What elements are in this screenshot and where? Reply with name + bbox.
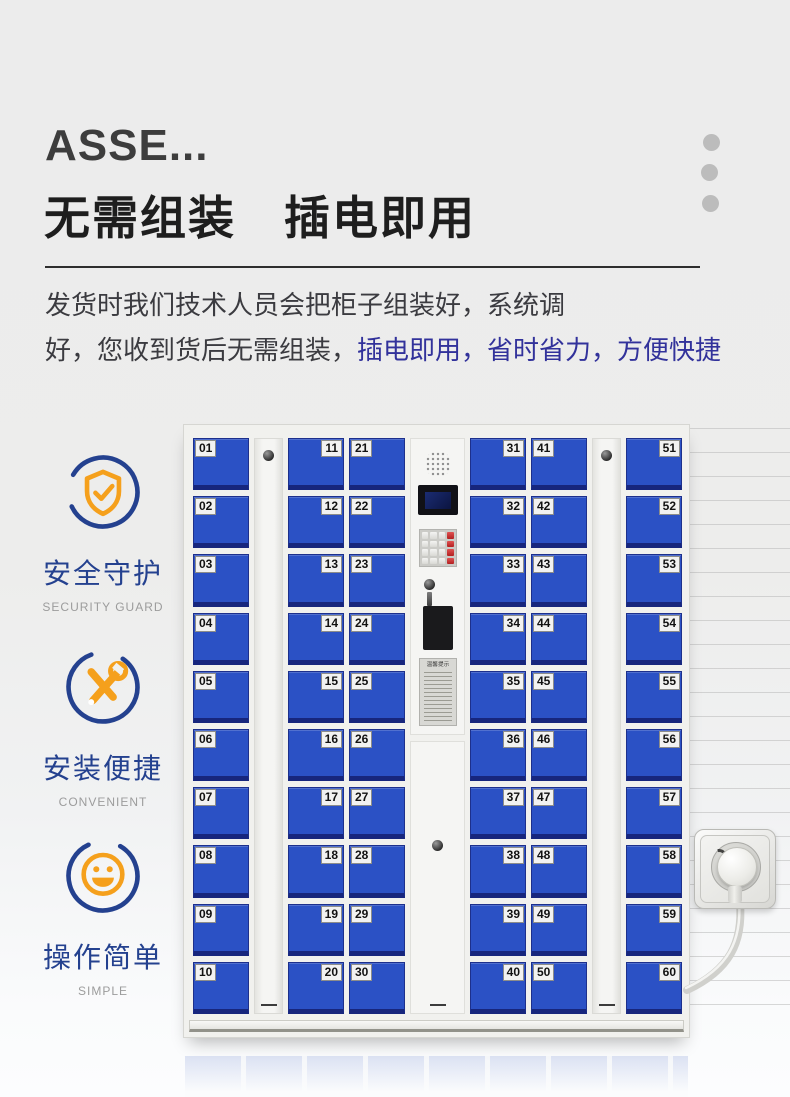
locker-door: 42 [531,496,587,548]
locker-door: 29 [349,904,405,956]
locker-door-number: 26 [351,731,372,748]
locker-door-number: 21 [351,440,372,457]
locker-door-number: 12 [321,498,342,515]
cabinet-columns: 01020304050607080910 1112131415161718192… [193,438,680,1014]
lock-icon [424,579,435,590]
locker-door: 39 [470,904,526,956]
locker-door-number: 46 [533,731,554,748]
locker-door-number: 35 [503,673,524,690]
paragraph-line2-accent: 插电即用，省时省力，方便快捷 [357,335,721,365]
locker-door-number: 01 [195,440,216,457]
locker-door-number: 09 [195,906,216,923]
locker-door: 56 [626,729,682,781]
locker-door-number: 52 [659,498,680,515]
plug-neck [728,886,742,903]
keypad-key [430,541,437,548]
keypad-key [422,549,429,556]
lock-icon [263,450,274,461]
locker-door-number: 04 [195,615,216,632]
panel-keypad [419,529,457,567]
locker-door: 44 [531,613,587,665]
keypad-key [439,558,446,565]
locker-door: 18 [288,845,344,897]
feature-sublabel: SIMPLE [22,984,184,998]
locker-door: 17 [288,787,344,839]
feature-label: 安装便捷 [22,747,184,787]
locker-door-number: 27 [351,789,372,806]
locker-door-number: 06 [195,731,216,748]
page-title: ASSE... [45,121,209,171]
locker-door-number: 19 [321,906,342,923]
feature-sublabel: SECURITY GUARD [22,600,184,614]
locker-door: 57 [626,787,682,839]
locker-column-01-10: 01020304050607080910 [193,438,249,1014]
key-icon [427,592,432,606]
locker-door-number: 13 [321,556,342,573]
locker-door: 15 [288,671,344,723]
locker-door-number: 32 [503,498,524,515]
locker-door-number: 42 [533,498,554,515]
feature-sublabel: CONVENIENT [22,795,184,809]
locker-door: 14 [288,613,344,665]
locker-door: 48 [531,845,587,897]
sticker-text-lines [424,672,452,722]
locker-door-number: 41 [533,440,554,457]
keypad-key [439,549,446,556]
locker-door-number: 23 [351,556,372,573]
divider-line [45,266,700,268]
locker-door: 55 [626,671,682,723]
product-banner: ASSE... 无需组装 插电即用 发货时我们技术人员会把柜子组装好，系统调 好… [0,0,790,1097]
locker-door: 38 [470,845,526,897]
locker-door-number: 22 [351,498,372,515]
locker-door-number: 51 [659,440,680,457]
locker-door-number: 38 [503,847,524,864]
locker-door: 20 [288,962,344,1014]
locker-door: 40 [470,962,526,1014]
decoration-dot-icon [703,134,720,151]
locker-door: 43 [531,554,587,606]
keypad-key [430,532,437,539]
locker-column-11-20: 11121314151617181920 [288,438,344,1014]
feature-label: 操作简单 [22,936,184,976]
keypad-key [430,549,437,556]
vent-slot [430,1004,446,1006]
keypad-key [439,532,446,539]
locker-door-number: 20 [321,964,342,981]
locker-door: 50 [531,962,587,1014]
locker-door-number: 31 [503,440,524,457]
locker-door: 16 [288,729,344,781]
locker-door-number: 05 [195,673,216,690]
locker-door: 27 [349,787,405,839]
keypad-red-key [447,532,454,539]
locker-door-number: 43 [533,556,554,573]
locker-door-number: 39 [503,906,524,923]
locker-door: 35 [470,671,526,723]
locker-door: 03 [193,554,249,606]
description-paragraph: 发货时我们技术人员会把柜子组装好，系统调 好，您收到货后无需组装，插电即用，省时… [45,283,765,373]
locker-door-number: 18 [321,847,342,864]
keypad-key [422,532,429,539]
keypad-red-key [447,541,454,548]
control-panel-column: 温馨提示 [410,438,465,1014]
locker-door: 11 [288,438,344,490]
locker-door-number: 53 [659,556,680,573]
page-heading: 无需组装 插电即用 [44,182,476,248]
locker-door-number: 36 [503,731,524,748]
locker-door-number: 15 [321,673,342,690]
locker-door-number: 10 [195,964,216,981]
locker-door: 36 [470,729,526,781]
locker-door: 22 [349,496,405,548]
locker-door-number: 55 [659,673,680,690]
locker-door: 26 [349,729,405,781]
locker-door-number: 50 [533,964,554,981]
locker-door: 04 [193,613,249,665]
locker-door: 51 [626,438,682,490]
locker-door-number: 25 [351,673,372,690]
locker-door: 47 [531,787,587,839]
locker-door: 53 [626,554,682,606]
locker-door: 09 [193,904,249,956]
feature-convenient: 安装便捷 CONVENIENT [22,645,184,809]
locker-door-number: 40 [503,964,524,981]
center-service-door [410,741,465,1014]
locker-door-number: 07 [195,789,216,806]
locker-door: 46 [531,729,587,781]
hinge-panel [592,438,621,1014]
locker-door-number: 17 [321,789,342,806]
feature-simple: 操作简单 SIMPLE [22,834,184,998]
control-screen [418,485,458,515]
locker-door: 21 [349,438,405,490]
locker-door-number: 03 [195,556,216,573]
locker-door-number: 14 [321,615,342,632]
locker-door-number: 56 [659,731,680,748]
locker-door: 12 [288,496,344,548]
power-socket [694,829,776,909]
locker-door: 13 [288,554,344,606]
locker-door-number: 49 [533,906,554,923]
locker-door-number: 54 [659,615,680,632]
hinge-panel [254,438,283,1014]
locker-door-number: 11 [321,440,342,457]
locker-door-number: 47 [533,789,554,806]
locker-door-number: 24 [351,615,372,632]
control-panel: 温馨提示 [410,438,465,735]
locker-door: 10 [193,962,249,1014]
vent-slot [261,1004,277,1006]
speaker-grille-icon [425,451,451,477]
lock-icon [432,840,443,851]
locker-door: 28 [349,845,405,897]
locker-door: 37 [470,787,526,839]
locker-door-number: 30 [351,964,372,981]
decoration-dot-icon [702,195,719,212]
locker-door: 31 [470,438,526,490]
feature-label: 安全守护 [22,552,184,592]
locker-door: 24 [349,613,405,665]
locker-door: 30 [349,962,405,1014]
keypad-key [439,541,446,548]
locker-door: 49 [531,904,587,956]
smiley-icon [22,834,184,918]
vent-slot [599,1004,615,1006]
locker-door-number: 02 [195,498,216,515]
locker-door-number: 29 [351,906,372,923]
instruction-sticker: 温馨提示 [419,658,457,726]
power-plug [717,847,757,887]
locker-door-number: 34 [503,615,524,632]
keypad-key [422,541,429,548]
locker-door-number: 16 [321,731,342,748]
locker-door: 32 [470,496,526,548]
locker-door: 05 [193,671,249,723]
decoration-dot-icon [701,164,718,181]
tools-icon [22,645,184,729]
feature-security: 安全守护 SECURITY GUARD [22,450,184,614]
locker-door: 02 [193,496,249,548]
locker-column-41-50: 41424344454647484950 [531,438,587,1014]
paragraph-line1: 发货时我们技术人员会把柜子组装好，系统调 [45,290,565,320]
lock-icon [601,450,612,461]
locker-door-number: 28 [351,847,372,864]
locker-door: 45 [531,671,587,723]
locker-door-number: 33 [503,556,524,573]
cabinet-base [189,1020,684,1032]
locker-door: 07 [193,787,249,839]
locker-door: 41 [531,438,587,490]
locker-door: 19 [288,904,344,956]
locker-door-number: 08 [195,847,216,864]
locker-door-number: 45 [533,673,554,690]
keypad-key [422,558,429,565]
sticker-title: 温馨提示 [424,662,451,669]
keypad-red-key [447,558,454,565]
locker-door: 08 [193,845,249,897]
locker-door-number: 44 [533,615,554,632]
keypad-red-key [447,549,454,556]
paragraph-line2-black: 好，您收到货后无需组装， [45,335,357,365]
locker-door-number: 57 [659,789,680,806]
shield-check-icon [22,450,184,534]
card-reader [423,606,453,650]
locker-door: 25 [349,671,405,723]
locker-door: 06 [193,729,249,781]
locker-door-number: 48 [533,847,554,864]
locker-door: 52 [626,496,682,548]
locker-column-21-30: 21222324252627282930 [349,438,405,1014]
locker-door-number: 37 [503,789,524,806]
locker-door: 23 [349,554,405,606]
locker-cabinet: 01020304050607080910 1112131415161718192… [183,424,690,1038]
locker-door: 34 [470,613,526,665]
keypad-key [430,558,437,565]
floor-reflection [185,1056,688,1097]
locker-column-31-40: 31323334353637383940 [470,438,526,1014]
locker-door: 33 [470,554,526,606]
locker-door: 54 [626,613,682,665]
locker-door: 01 [193,438,249,490]
